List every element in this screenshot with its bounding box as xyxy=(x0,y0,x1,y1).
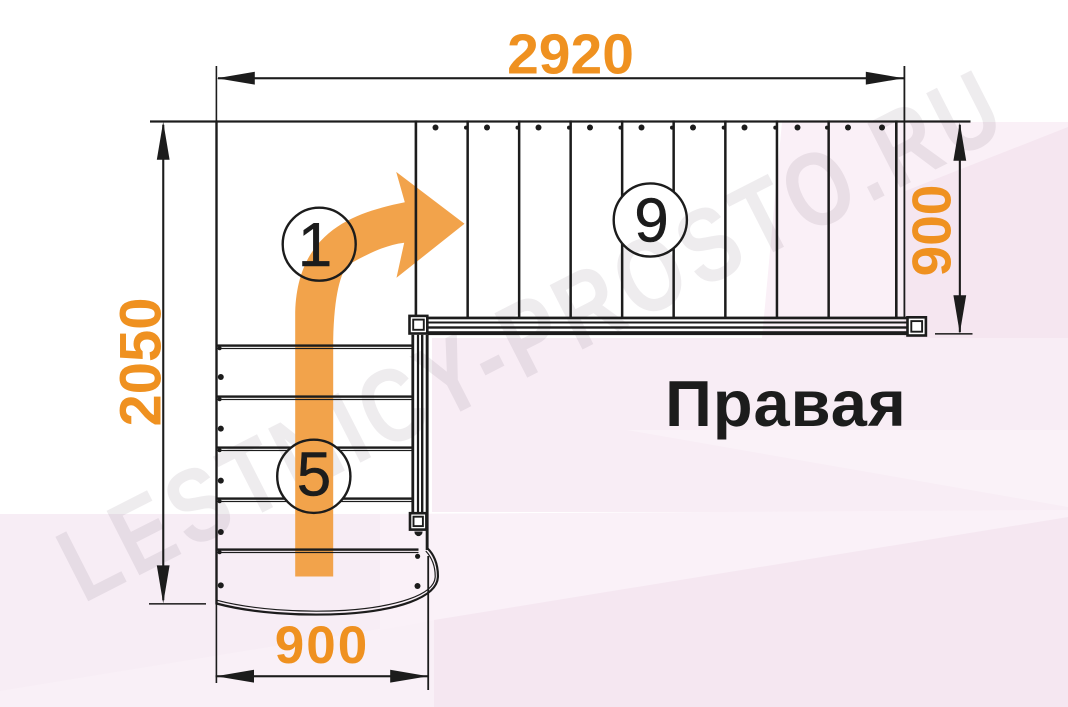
svg-text:1: 1 xyxy=(298,211,332,280)
svg-text:900: 900 xyxy=(901,185,963,277)
svg-text:5: 5 xyxy=(297,441,331,510)
svg-text:900: 900 xyxy=(275,616,369,675)
svg-text:2050: 2050 xyxy=(109,297,174,426)
svg-text:9: 9 xyxy=(634,187,668,256)
svg-text:2920: 2920 xyxy=(507,23,634,87)
svg-text:Правая: Правая xyxy=(665,367,907,440)
